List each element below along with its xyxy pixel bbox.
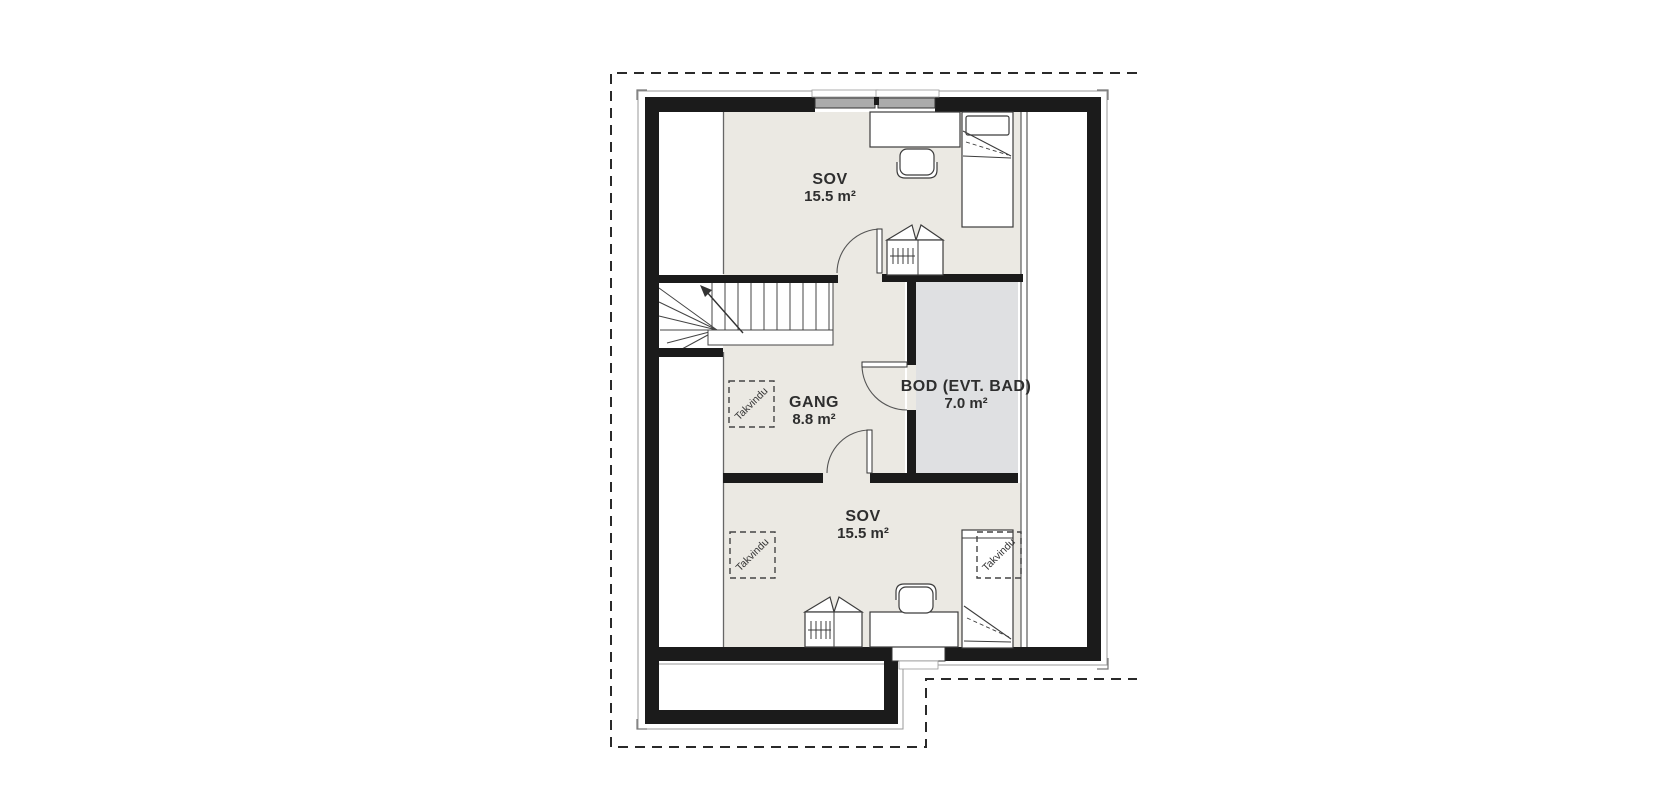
top-wall-windows	[812, 90, 939, 112]
bed-icon	[962, 112, 1013, 227]
window-icon	[878, 98, 935, 108]
stairs-icon	[658, 283, 833, 349]
stair-railing	[708, 330, 833, 345]
window-icon	[892, 646, 945, 661]
room-area-sov-1: 15.5 m²	[804, 188, 856, 205]
door-leaf	[862, 362, 907, 367]
sov2-door-opening	[823, 473, 870, 483]
room-area-bod: 7.0 m²	[944, 395, 987, 412]
window-sill	[876, 90, 939, 97]
room-label-bod: BOD (EVT. BAD)	[901, 378, 1032, 395]
window-mullion	[874, 97, 879, 105]
door-leaf	[877, 229, 882, 273]
desk-icon	[870, 612, 958, 647]
window-sill	[899, 661, 938, 669]
chair-icon	[897, 149, 937, 178]
window-sill	[812, 90, 878, 97]
floor-plan-svg: Takvindu Takvindu Takvindu SOV 15.5 m² G…	[0, 0, 1670, 800]
room-label-sov-1: SOV	[812, 171, 847, 188]
door-leaf	[867, 430, 872, 473]
bottom-wall-window	[892, 646, 945, 669]
pillow	[966, 116, 1009, 135]
room-label-sov-2: SOV	[845, 508, 880, 525]
room-label-gang: GANG	[789, 394, 839, 411]
room-area-sov-2: 15.5 m²	[837, 525, 889, 542]
floor-plan-page: Takvindu Takvindu Takvindu SOV 15.5 m² G…	[0, 0, 1670, 800]
room-gang-corridor-floor	[833, 274, 905, 352]
window-icon	[815, 98, 875, 108]
desk-icon	[870, 112, 960, 147]
chair-icon	[896, 584, 936, 613]
room-area-gang: 8.8 m²	[792, 411, 835, 428]
